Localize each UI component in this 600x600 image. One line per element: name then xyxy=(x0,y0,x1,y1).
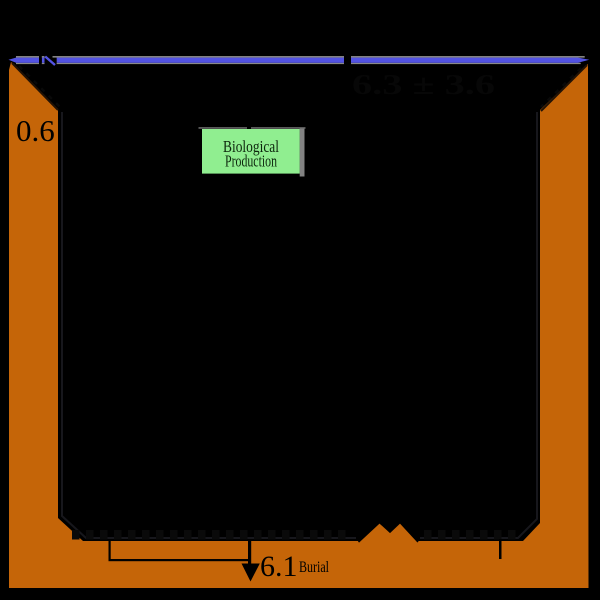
svg-text:6.1: 6.1 xyxy=(260,550,298,583)
svg-text:Production: Production xyxy=(225,151,277,170)
svg-text:6.3 ± 3.6: 6.3 ± 3.6 xyxy=(352,69,495,101)
svg-text:0.6: 0.6 xyxy=(16,113,55,148)
svg-text:Burial: Burial xyxy=(299,559,329,576)
